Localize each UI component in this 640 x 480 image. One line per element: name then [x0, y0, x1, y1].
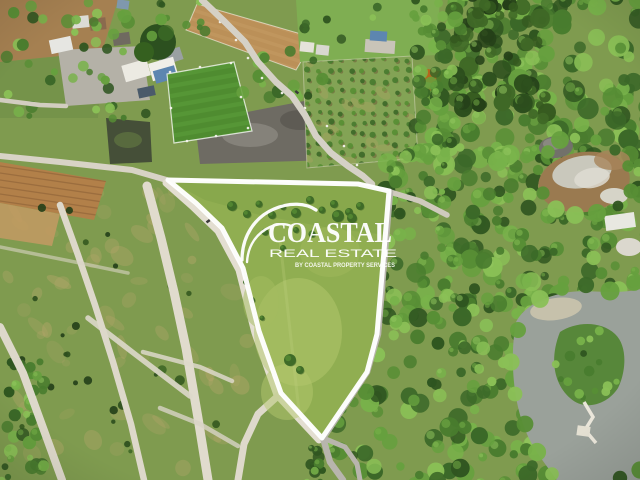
- vignette: [0, 0, 640, 480]
- aerial-photo: COASTAL REAL ESTATE BY COASTAL PROPERTY …: [0, 0, 640, 480]
- aerial-photo-listing: COASTAL REAL ESTATE BY COASTAL PROPERTY …: [0, 0, 640, 480]
